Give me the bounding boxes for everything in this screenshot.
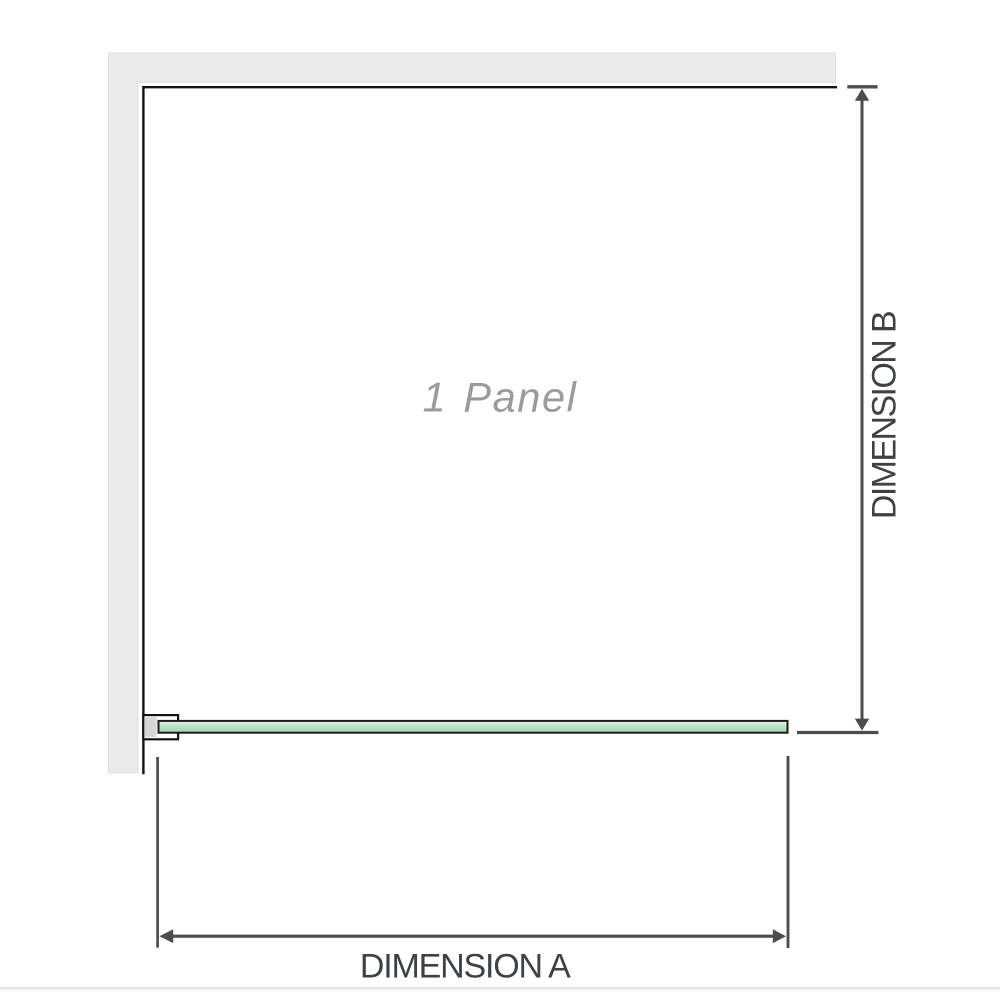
svg-text:DIMENSION A: DIMENSION A: [360, 948, 571, 986]
svg-text:DIMENSION B: DIMENSION B: [865, 312, 903, 519]
svg-text:1 Panel: 1 Panel: [423, 374, 578, 421]
